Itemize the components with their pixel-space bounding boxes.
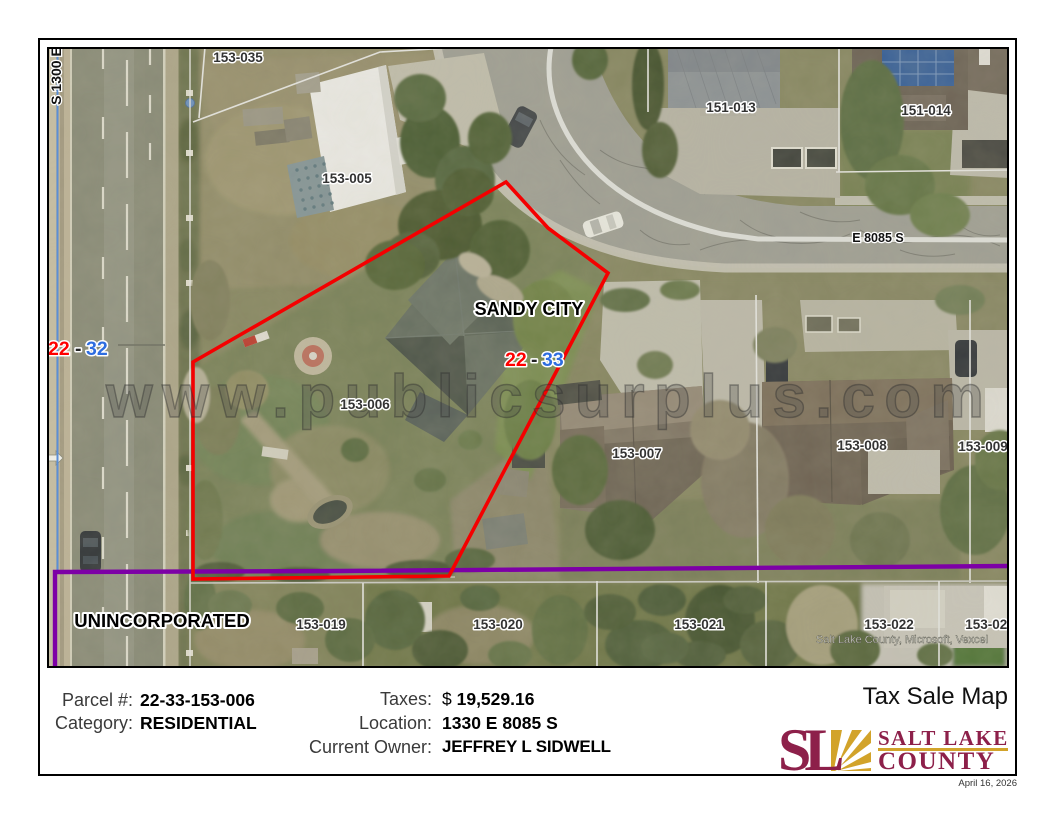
svg-text:-: - (75, 338, 82, 360)
svg-text:153-008: 153-008 (837, 438, 887, 453)
svg-text:153-007: 153-007 (612, 446, 662, 461)
svg-text:SANDY CITY: SANDY CITY (475, 299, 584, 319)
svg-text:22: 22 (48, 338, 70, 360)
svg-text:153-022: 153-022 (864, 617, 914, 632)
svg-text:22: 22 (505, 349, 527, 371)
svg-text:SL: SL (778, 722, 842, 776)
svg-text:-: - (531, 349, 538, 371)
svg-text:Salt Lake County, Microsoft, V: Salt Lake County, Microsoft, Vexcel (816, 634, 988, 646)
svg-text:153-006: 153-006 (340, 397, 390, 412)
svg-text:151-014: 151-014 (901, 103, 951, 118)
svg-text:SALT LAKE: SALT LAKE (878, 726, 1009, 750)
svg-text:153-023: 153-023 (965, 617, 1009, 632)
svg-text:COUNTY: COUNTY (878, 748, 995, 775)
svg-text:33: 33 (542, 349, 564, 371)
svg-text:153-020: 153-020 (473, 617, 523, 632)
svg-text:153-009: 153-009 (958, 439, 1008, 454)
svg-text:www.publicsurplus.com: www.publicsurplus.com (105, 363, 993, 430)
svg-text:153-021: 153-021 (674, 617, 724, 632)
svg-text:E 8085 S: E 8085 S (852, 231, 903, 245)
svg-text:151-013: 151-013 (706, 100, 756, 115)
svg-text:153-035: 153-035 (213, 50, 263, 65)
svg-text:32: 32 (86, 338, 108, 360)
svg-text:S 1300 E: S 1300 E (48, 47, 64, 105)
svg-text:153-019: 153-019 (296, 617, 346, 632)
svg-text:153-005: 153-005 (322, 171, 372, 186)
svg-text:UNINCORPORATED: UNINCORPORATED (74, 610, 249, 631)
